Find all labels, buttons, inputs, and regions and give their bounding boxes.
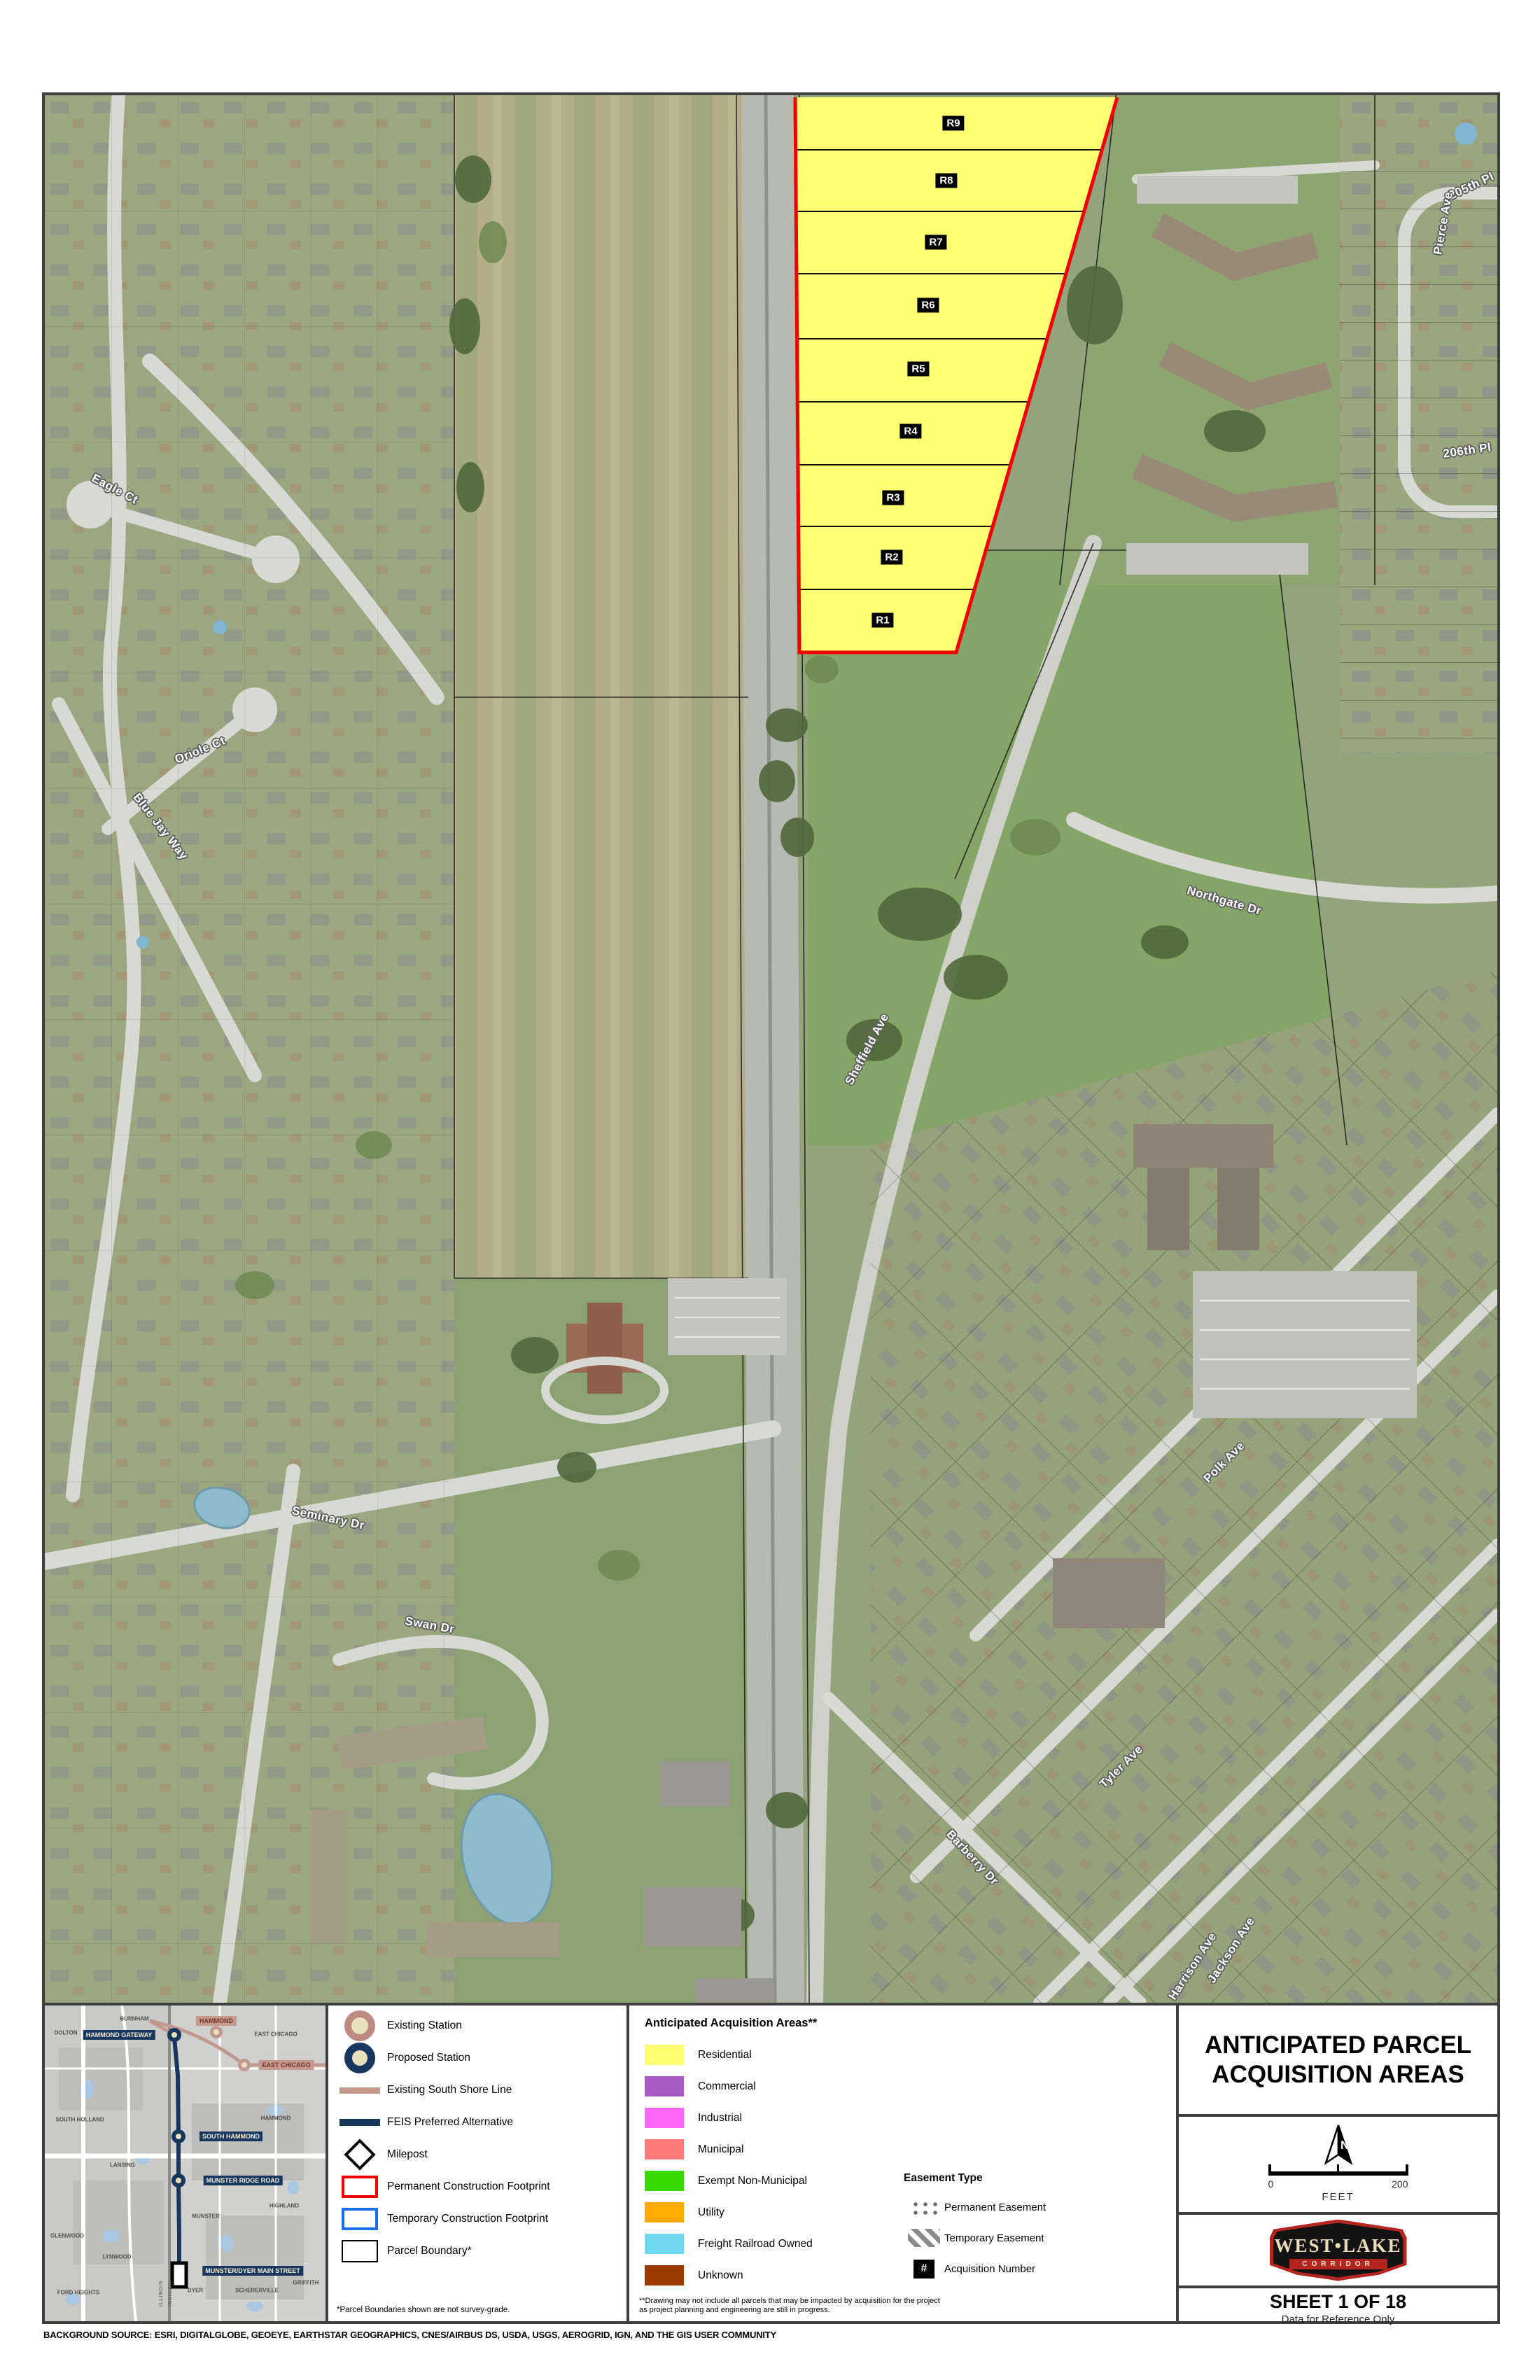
reference-note: Data for Reference Only: [1179, 2313, 1497, 2325]
logo-westlake-text: WEST•LAKE: [1270, 2235, 1407, 2257]
legend-row-rect-black: Parcel Boundary*: [332, 2235, 622, 2267]
inset-city-label: DYER: [188, 2288, 203, 2295]
color-swatch: [645, 2265, 684, 2285]
acquisition-row: Municipal: [645, 2134, 813, 2165]
easement-label: Acquisition Number: [944, 2263, 1035, 2275]
inset-city-label: SCHERERVILLE: [235, 2288, 279, 2295]
sheet-number-row: SHEET 1 OF 18 Data for Reference Only: [1179, 2285, 1497, 2321]
acquisition-note: **Drawing may not include all parcels th…: [639, 2297, 940, 2316]
sheet-number: SHEET 1 OF 18: [1179, 2291, 1497, 2313]
acquisition-area-rows: ResidentialCommercialIndustrialMunicipal…: [645, 2039, 813, 2291]
legend-label: Milepost: [387, 2148, 428, 2161]
sheet-title: ANTICIPATED PARCEL ACQUISITION AREAS: [1179, 2005, 1497, 2114]
easement-row-dots: Permanent Easement: [904, 2192, 1046, 2222]
color-swatch: [645, 2171, 684, 2191]
inset-proposed-station-badge: MUNSTER RIDGE ROAD: [204, 2176, 283, 2185]
acquisition-number-label: R9: [942, 116, 964, 131]
easement-icon-cell: [904, 2229, 944, 2247]
legend-row-station-existing: Existing Station: [332, 2010, 622, 2042]
inset-city-label: LYNWOOD: [102, 2255, 131, 2261]
inset-city-label: LANSING: [110, 2163, 135, 2169]
legend-icon-cell: [332, 2176, 387, 2198]
easement-type-section: Easement Type Permanent EasementTemporar…: [904, 2172, 1046, 2284]
acquisition-number-label: R1: [871, 613, 893, 628]
inset-state-label: INDIANA: [168, 2281, 173, 2306]
acquisition-number-label: R2: [881, 550, 902, 565]
legend-row-line-feis: FEIS Preferred Alternative: [332, 2106, 622, 2138]
inset-existing-station-badge: EAST CHICAGO: [258, 2060, 314, 2070]
acquisition-row: Industrial: [645, 2102, 813, 2134]
milepost-icon: [344, 2138, 375, 2170]
inset-proposed-station-badge: SOUTH HAMMOND: [199, 2131, 262, 2141]
inset-city-label: FORD HEIGHTS: [57, 2290, 99, 2297]
inset-locator-map[interactable]: BURNHAMDOLTONEAST CHICAGOSOUTH HOLLANDHA…: [42, 2003, 328, 2324]
legend-icon-cell: [332, 2143, 387, 2166]
legend-label: Existing South Shore Line: [387, 2084, 512, 2096]
legend-label: FEIS Preferred Alternative: [387, 2116, 513, 2129]
logo-corridor-text: CORRIDOR: [1289, 2259, 1387, 2269]
acquisition-row: Exempt Non-Municipal: [645, 2165, 813, 2197]
acquisition-label: Unknown: [698, 2269, 743, 2282]
north-scale-row: N 0 200 FEET: [1179, 2114, 1497, 2212]
acquisition-number-label: R5: [907, 362, 929, 377]
dots-icon: [909, 2199, 939, 2215]
legend-label: Existing Station: [387, 2019, 462, 2032]
easement-row-hatch: Temporary Easement: [904, 2222, 1046, 2253]
legend-row-station-proposed: Proposed Station: [332, 2042, 622, 2074]
inset-city-label: HIGHLAND: [269, 2204, 299, 2210]
acquisition-row: Freight Railroad Owned: [645, 2228, 813, 2260]
legend-symbol-rows: Existing StationProposed StationExisting…: [332, 2010, 622, 2267]
acquisition-number-label: R4: [899, 424, 921, 439]
scale-bar: 0 200 FEET: [1268, 2171, 1408, 2203]
inset-city-label: DOLTON: [54, 2031, 77, 2037]
color-swatch: [645, 2045, 684, 2065]
legend-icon-cell: [332, 2043, 387, 2073]
inset-city-label: GLENWOOD: [50, 2234, 84, 2240]
title-block: ANTICIPATED PARCEL ACQUISITION AREAS N 0…: [1176, 2003, 1500, 2324]
acquisition-label: Exempt Non-Municipal: [698, 2175, 807, 2187]
acquisition-label: Municipal: [698, 2143, 743, 2156]
acquisition-number-label: R7: [925, 235, 946, 250]
scale-unit: FEET: [1268, 2191, 1408, 2203]
legend-label: Proposed Station: [387, 2052, 470, 2064]
acquisition-label: Utility: [698, 2206, 724, 2219]
legend-acquisition: Anticipated Acquisition Areas** Resident…: [626, 2003, 1179, 2324]
acquisition-number-label: R3: [882, 491, 904, 505]
legend-row-milepost: Milepost: [332, 2138, 622, 2171]
hatch-icon: [908, 2229, 940, 2247]
legend-label: Permanent Construction Footprint: [387, 2180, 550, 2193]
hash-icon: #: [913, 2260, 934, 2278]
legend-icon-cell: [332, 2119, 387, 2126]
easement-label: Permanent Easement: [944, 2201, 1046, 2213]
legend-icon-cell: [332, 2240, 387, 2262]
easement-rows: Permanent EasementTemporary Easement#Acq…: [904, 2192, 1046, 2284]
acquisition-areas-title: Anticipated Acquisition Areas**: [645, 2017, 817, 2030]
inset-proposed-station-badge: MUNSTER/DYER MAIN STREET: [202, 2266, 303, 2276]
easement-icon-cell: #: [904, 2260, 944, 2278]
rect-blue-icon: [342, 2208, 378, 2230]
line-feis-icon: [339, 2119, 380, 2126]
inset-label-layer: BURNHAMDOLTONEAST CHICAGOSOUTH HOLLANDHA…: [45, 2005, 325, 2321]
inset-city-label: GRIFFITH: [293, 2281, 319, 2287]
acquisition-number-label: R6: [917, 298, 939, 313]
color-swatch: [645, 2108, 684, 2128]
easement-row-hash: #Acquisition Number: [904, 2253, 1046, 2284]
acquisition-label: Residential: [698, 2049, 752, 2061]
legend-row-line-shore: Existing South Shore Line: [332, 2074, 622, 2106]
scale-end: 200: [1392, 2178, 1408, 2190]
inset-state-label: ILLINOIS: [159, 2280, 164, 2306]
scale-start: 0: [1268, 2178, 1274, 2190]
background-source-text: BACKGROUND SOURCE: ESRI, DIGITALGLOBE, G…: [43, 2330, 776, 2340]
acquisition-row: Commercial: [645, 2071, 813, 2102]
inset-city-label: EAST CHICAGO: [254, 2032, 297, 2038]
legend-icon-cell: [332, 2010, 387, 2041]
easement-icon-cell: [904, 2199, 944, 2215]
legend-row-rect-red: Permanent Construction Footprint: [332, 2171, 622, 2203]
acquisition-number-label: R8: [935, 174, 957, 188]
acquisition-row: Unknown: [645, 2260, 813, 2291]
legend-symbols: Existing StationProposed StationExisting…: [325, 2003, 629, 2324]
acquisition-row: Residential: [645, 2039, 813, 2071]
easement-label: Temporary Easement: [944, 2232, 1044, 2244]
legend-icon-cell: [332, 2087, 387, 2094]
inset-city-label: MUNSTER: [192, 2214, 220, 2220]
rect-black-icon: [342, 2240, 378, 2262]
inset-existing-station-badge: HAMMOND: [196, 2016, 237, 2026]
color-swatch: [645, 2234, 684, 2254]
svg-text:N: N: [1340, 2138, 1349, 2152]
inset-city-label: HAMMOND: [261, 2116, 291, 2122]
parcel-boundary-note: *Parcel Boundaries shown are not survey-…: [337, 2306, 510, 2314]
legend-label: Temporary Construction Footprint: [387, 2213, 548, 2225]
legend-row-rect-blue: Temporary Construction Footprint: [332, 2203, 622, 2235]
acquisition-row: Utility: [645, 2197, 813, 2228]
inset-city-label: BURNHAM: [120, 2017, 148, 2023]
color-swatch: [645, 2139, 684, 2159]
station-existing-icon: [344, 2010, 375, 2041]
map-viewport[interactable]: Eagle CtOriole CtBlue Jay WaySheffield A…: [42, 92, 1500, 2005]
logo-row: WEST•LAKE CORRIDOR: [1179, 2212, 1497, 2285]
rect-red-icon: [342, 2176, 378, 2198]
color-swatch: [645, 2202, 684, 2222]
inset-proposed-station-badge: HAMMOND GATEWAY: [83, 2030, 155, 2040]
acquisition-label: Commercial: [698, 2080, 756, 2093]
acquisition-label: Freight Railroad Owned: [698, 2238, 813, 2250]
color-swatch: [645, 2076, 684, 2096]
acquisition-label: Industrial: [698, 2112, 742, 2124]
legend-icon-cell: [332, 2208, 387, 2230]
station-proposed-icon: [344, 2043, 375, 2073]
legend-label: Parcel Boundary*: [387, 2245, 472, 2257]
easement-type-title: Easement Type: [904, 2172, 1046, 2185]
west-lake-corridor-logo: WEST•LAKE CORRIDOR: [1270, 2220, 1407, 2281]
acquisition-parcel-layer: R9R8R7R6R5R4R3R2R1: [45, 95, 1497, 2003]
inset-city-label: SOUTH HOLLAND: [55, 2117, 104, 2124]
line-shore-icon: [339, 2087, 380, 2094]
north-arrow-icon: N: [1319, 2122, 1358, 2167]
